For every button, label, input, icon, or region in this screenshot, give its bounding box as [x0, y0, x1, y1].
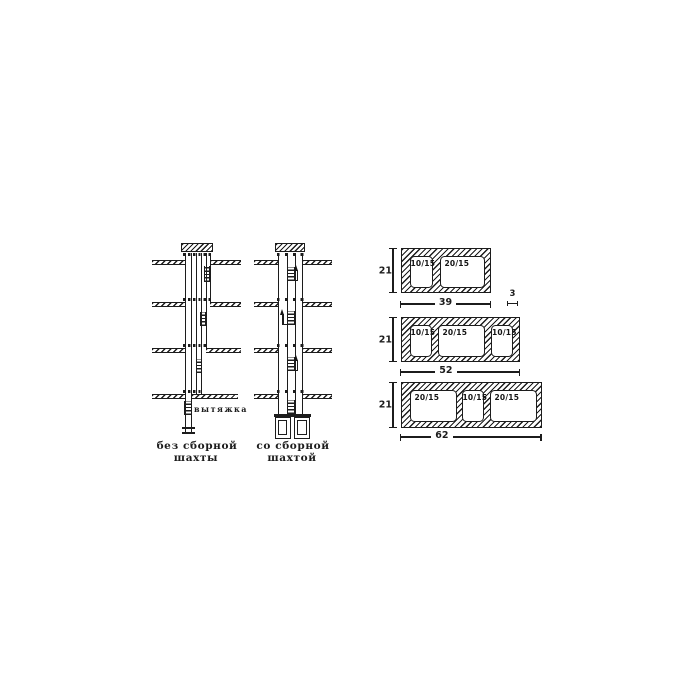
- cell-size-label: 10/15: [411, 328, 431, 337]
- floor-slab: [302, 302, 332, 308]
- cell-size-label: 20/15: [495, 393, 520, 402]
- coupling-ticks: [183, 344, 208, 347]
- roof-cap: [275, 243, 305, 253]
- wall-thickness-dim: 3: [506, 289, 520, 306]
- block-body: 10/15 20/15: [401, 248, 492, 293]
- dim-label: 39: [435, 297, 456, 308]
- dim-tick: [490, 301, 491, 308]
- figure-canvas: вытяжка без сборной шахты: [0, 0, 700, 700]
- floor-slab: [152, 394, 185, 400]
- cell-size-label: 10/15: [411, 259, 433, 268]
- dim-line: [392, 382, 393, 428]
- floor-slab: [152, 302, 185, 308]
- collector-box: [294, 417, 311, 439]
- height-dim: 21: [383, 248, 397, 293]
- floor-slab: [254, 348, 278, 354]
- floor-slab: [254, 260, 278, 266]
- dim-label: 21: [379, 265, 392, 276]
- block-opening: 20/15: [490, 390, 537, 422]
- exhaust-label: вытяжка: [194, 404, 248, 414]
- floor-slab: [192, 394, 238, 400]
- arrow-connector: [291, 370, 298, 372]
- dim-label: 62: [431, 430, 452, 441]
- dim-line: [453, 436, 541, 437]
- floor-slab: [302, 260, 332, 266]
- arrow-connector: [283, 324, 290, 326]
- block-opening: 20/15: [438, 325, 485, 357]
- exhaust-pipe-tick: [182, 432, 196, 434]
- block-opening: 10/15: [462, 390, 484, 422]
- floor-slab: [254, 394, 278, 400]
- arrow-connector: [291, 280, 298, 282]
- vent-grille: [200, 312, 206, 326]
- floor-slab: [302, 394, 332, 400]
- caption-individual-line2: шахты: [174, 453, 218, 465]
- cell-size-label: 10/15: [492, 328, 512, 337]
- width-dim: 39: [400, 298, 491, 310]
- collector-box-inner: [297, 420, 307, 435]
- coupling-ticks: [277, 390, 304, 393]
- dim-tick: [519, 369, 520, 376]
- caption-individual-line1: без сборной: [157, 441, 238, 453]
- dim-label: 21: [379, 400, 392, 411]
- floor-slab: [254, 302, 278, 308]
- scanned-figure-page: { "diagrams": { "left": { "exhaust_label…: [0, 0, 700, 700]
- width-dim: 62: [400, 431, 542, 443]
- block-body: 20/15 10/15 20/15: [401, 382, 542, 428]
- dim-tick: [389, 361, 397, 362]
- dim-tick: [517, 301, 518, 306]
- collector-box-inner: [278, 420, 287, 435]
- floor-slab: [302, 348, 332, 354]
- height-dim: 21: [383, 382, 397, 428]
- dim-line: [392, 317, 393, 362]
- cell-size-label: 20/15: [415, 393, 440, 402]
- dim-line: [401, 303, 435, 304]
- caption-collective-line2: шахтой: [267, 453, 316, 465]
- coupling-ticks: [277, 253, 304, 256]
- dim-tick: [389, 427, 397, 428]
- dim-line: [456, 303, 490, 304]
- floor-slab: [210, 260, 241, 266]
- collector-box: [275, 417, 291, 439]
- cell-size-label: 20/15: [445, 259, 470, 268]
- coupling-ticks: [277, 344, 304, 347]
- dim-label: 52: [435, 365, 456, 376]
- floor-slab: [152, 260, 185, 266]
- block-opening: 10/15: [410, 256, 434, 288]
- dim-label: 21: [379, 334, 392, 345]
- coupling-ticks: [277, 298, 304, 301]
- block-opening: 20/15: [410, 390, 457, 422]
- cell-size-label: 20/15: [443, 328, 468, 337]
- floor-slab: [210, 302, 241, 308]
- height-dim: 21: [383, 317, 397, 362]
- block-opening: 10/15: [491, 325, 513, 357]
- coupling-ticks: [183, 298, 212, 301]
- exhaust-pipe-tick: [182, 427, 196, 429]
- cell-size-label: 10/15: [463, 393, 483, 402]
- roof-cap: [181, 243, 213, 253]
- dim-line: [401, 436, 431, 437]
- floor-slab: [206, 348, 241, 354]
- dim-label: 3: [506, 289, 520, 299]
- dim-line: [392, 248, 393, 293]
- vent-grille: [184, 401, 192, 415]
- caption-collective-line1: со сборной: [256, 441, 329, 453]
- dim-line: [401, 371, 435, 372]
- dim-tick: [540, 434, 541, 441]
- vent-grille: [287, 400, 296, 414]
- dim-line: [457, 371, 519, 372]
- block-body: 10/15 20/15 10/15: [401, 317, 521, 362]
- block-opening: 20/15: [440, 256, 485, 288]
- coupling-ticks: [183, 390, 203, 393]
- dim-tick: [507, 301, 508, 306]
- floor-slab: [152, 348, 185, 354]
- dim-tick: [389, 292, 397, 293]
- block-opening: 10/15: [410, 325, 432, 357]
- width-dim: 52: [400, 366, 520, 378]
- vent-grille: [204, 266, 210, 282]
- vent-grille: [196, 359, 202, 373]
